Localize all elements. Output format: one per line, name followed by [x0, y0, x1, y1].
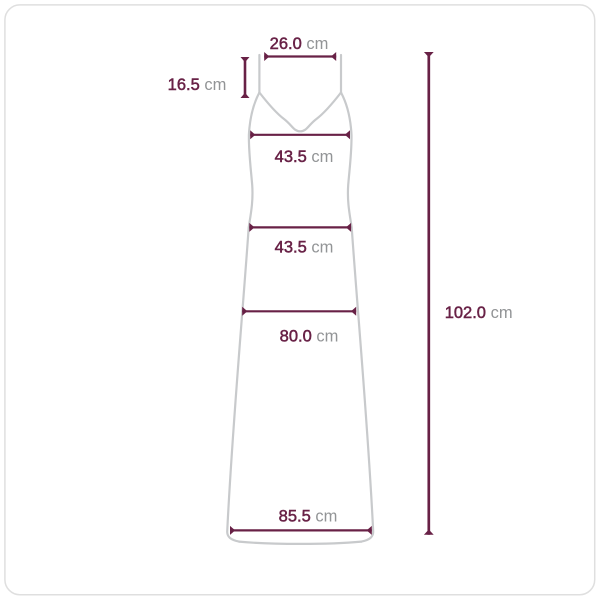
svg-text:43.5 cm: 43.5 cm — [275, 148, 334, 166]
svg-text:43.5 cm: 43.5 cm — [275, 239, 334, 257]
svg-text:26.0 cm: 26.0 cm — [270, 35, 329, 53]
svg-text:80.0 cm: 80.0 cm — [280, 328, 339, 346]
svg-text:85.5 cm: 85.5 cm — [279, 508, 338, 526]
svg-text:16.5 cm: 16.5 cm — [168, 76, 227, 94]
svg-text:102.0 cm: 102.0 cm — [445, 304, 513, 322]
